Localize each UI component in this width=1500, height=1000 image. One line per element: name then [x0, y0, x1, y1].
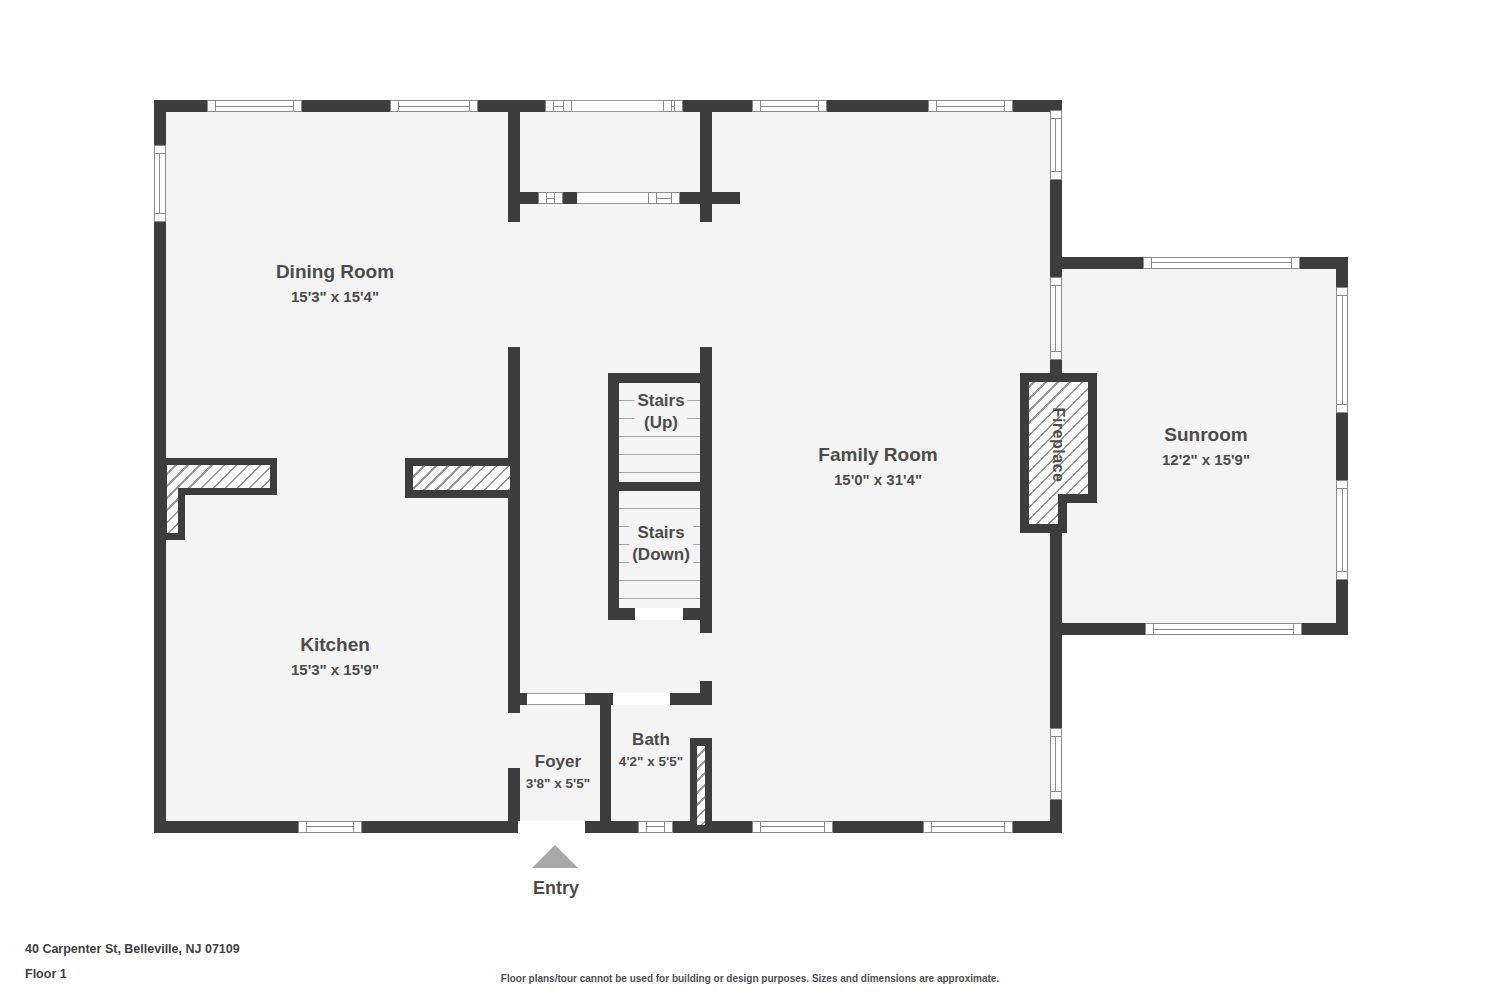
room-name: Foyer [526, 750, 590, 774]
room-label-dining: Dining Room 15'3" x 15'4" [276, 259, 394, 307]
window [538, 192, 563, 204]
room-name: Bath [619, 728, 683, 752]
window [752, 821, 833, 833]
window [638, 821, 673, 833]
kitchen-counter-island [405, 458, 518, 498]
window [154, 145, 166, 222]
entry-label: Entry [533, 878, 579, 899]
foyer-pass-through [527, 693, 585, 705]
stairs-wall-top [608, 373, 712, 383]
hall-divider-wall [508, 347, 520, 713]
room-name: Kitchen [291, 632, 379, 659]
room-dims: 4'2" x 5'5" [619, 752, 683, 771]
window [1050, 110, 1062, 180]
window [298, 821, 362, 833]
room-name: Dining Room [276, 259, 394, 286]
window [1050, 728, 1062, 800]
stairs-door-opening [635, 608, 683, 620]
window [1143, 257, 1300, 269]
window [390, 100, 478, 112]
window [648, 192, 680, 204]
stairs-down-label: Stairs (Down) [629, 522, 693, 566]
vestibule-wall-right [700, 112, 712, 222]
entry-door-opening [518, 821, 585, 833]
disclaimer-text: Floor plans/tour cannot be used for buil… [0, 973, 1500, 984]
room-label-bath: Bath 4'2" x 5'5" [619, 728, 683, 771]
room-name: Family Room [818, 442, 937, 469]
room-dims: 15'3" x 15'4" [276, 286, 394, 307]
window [923, 821, 1013, 833]
stairs-wall-left [608, 373, 619, 620]
address-text: 40 Carpenter St, Belleville, NJ 07109 [25, 942, 240, 956]
stairs-up-label: Stairs (Up) [634, 390, 687, 434]
room-dims: 12'2" x 15'9" [1162, 449, 1250, 470]
window [752, 100, 827, 112]
window [1050, 277, 1062, 360]
window [663, 100, 683, 112]
window [207, 100, 302, 112]
vestibule-wall-left [508, 112, 520, 222]
room-label-kitchen: Kitchen 15'3" x 15'9" [291, 632, 379, 680]
bath-pocket-door [690, 738, 712, 833]
entry-arrow-icon [532, 845, 578, 868]
window [1336, 480, 1348, 580]
window [1336, 287, 1348, 413]
foyer-wall-left [508, 768, 520, 821]
window [1145, 623, 1302, 635]
room-dims: 15'0" x 31'4" [818, 469, 937, 490]
room-label-family: Family Room 15'0" x 31'4" [818, 442, 937, 490]
vestibule-top-opening [572, 100, 663, 112]
room-label-foyer: Foyer 3'8" x 5'5" [526, 750, 590, 793]
vestibule-bottom-opening [577, 192, 648, 204]
kitchen-counter-l [160, 458, 277, 540]
room-dims: 15'3" x 15'9" [291, 659, 379, 680]
vestibule-wall-stub [712, 192, 740, 204]
bath-wall-left [600, 693, 611, 833]
stairs-landing-divider [608, 482, 712, 491]
room-name: Sunroom [1162, 422, 1250, 449]
bath-door-opening [613, 693, 670, 705]
window [928, 100, 1013, 112]
floor-plan: Fireplace Dining Room 15'3" x 15'4" Kitc… [0, 0, 1500, 1000]
window [545, 100, 572, 112]
fireplace-label: Fireplace [1049, 408, 1067, 483]
room-label-sunroom: Sunroom 12'2" x 15'9" [1162, 422, 1250, 470]
room-dims: 3'8" x 5'5" [526, 774, 590, 793]
